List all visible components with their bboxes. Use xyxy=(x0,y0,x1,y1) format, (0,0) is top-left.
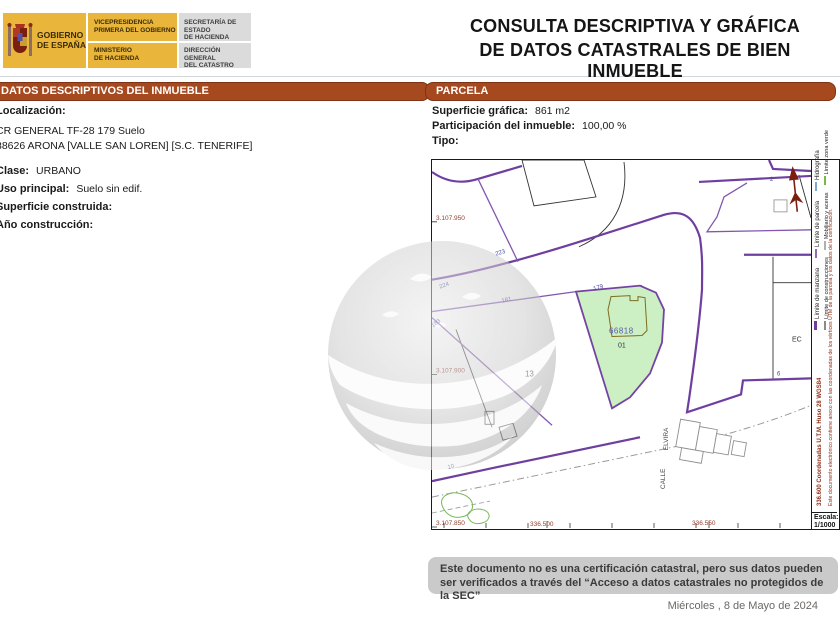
svg-text:10: 10 xyxy=(447,464,456,471)
gobierno-logo-box: GOBIERNO DE ESPAÑA xyxy=(3,13,86,68)
building-cluster xyxy=(674,419,749,470)
svg-text:3.107.850: 3.107.850 xyxy=(436,520,465,527)
uso-principal-row: Uso principal:Suelo sin edif. xyxy=(0,183,142,195)
small-building-outline xyxy=(774,200,787,212)
hidrografia-swatch-icon xyxy=(815,182,817,191)
title-line1: CONSULTA DESCRIPTIVA Y GRÁFICA xyxy=(440,16,830,37)
svg-text:3.107.900: 3.107.900 xyxy=(436,367,465,374)
ministerio-box: VICEPRESIDENCIA PRIMERA DEL GOBIERNO MIN… xyxy=(88,13,177,68)
street-name-calle-elvira: ELVIRA CALLE xyxy=(660,427,670,489)
spain-coat-of-arms-icon xyxy=(7,20,33,62)
subject-parcel-sub: 01 xyxy=(618,342,626,349)
svg-text:CALLE: CALLE xyxy=(660,468,667,489)
north-arrow-icon xyxy=(786,165,805,212)
secretaria-line1: SECRETARÍA DE ESTADO xyxy=(184,19,251,34)
svg-text:224: 224 xyxy=(439,281,451,290)
sidewalk-dashed-line-2 xyxy=(432,501,490,513)
svg-text:336.500: 336.500 xyxy=(530,521,554,528)
parcela-section-bar: PARCELA xyxy=(425,82,836,101)
disclaimer-box: Este documento no es una certificación c… xyxy=(428,557,838,594)
ec-label: EC xyxy=(792,337,802,344)
superficie-grafica-row: Superficie gráfica:861 m2 xyxy=(432,105,570,117)
svg-text:3.107.950: 3.107.950 xyxy=(436,215,465,222)
svg-text:6: 6 xyxy=(777,371,781,377)
localizacion-label: Localización: xyxy=(0,105,66,117)
vicepresidencia-line1: VICEPRESIDENCIA xyxy=(94,19,176,27)
scale-label: Escala: xyxy=(814,514,837,522)
cadastral-document-page: GOBIERNO DE ESPAÑA VICEPRESIDENCIA PRIME… xyxy=(0,0,840,630)
title-line2: DE DATOS CATASTRALES DE BIEN INMUEBLE xyxy=(440,40,830,82)
map-legend-column: Límite de manzanaLímite de parcelaHidrog… xyxy=(811,160,837,529)
vicepresidencia-line2: PRIMERA DEL GOBIERNO xyxy=(94,27,176,35)
zona-verde-contours xyxy=(442,493,490,524)
svg-text:223: 223 xyxy=(495,249,507,258)
cadastral-map-frame: 3.107.950 3.107.900 3.107.850 336.500 33… xyxy=(431,159,840,530)
ministerio-line1: MINISTERIO xyxy=(94,47,139,55)
electronic-document-note: Este documento electrónico contiene anex… xyxy=(826,174,837,506)
direccion-catastro-line1: DIRECCIÓN GENERAL xyxy=(184,47,251,62)
parcela-section-title: PARCELA xyxy=(436,85,488,97)
address-line2: 38626 ARONA [VALLE SAN LOREN] [S.C. TENE… xyxy=(0,140,252,152)
scale-value: 1/1000 xyxy=(814,522,837,530)
secretaria-box: SECRETARÍA DE ESTADO DE HACIENDA DIRECCI… xyxy=(179,13,251,68)
manzana-swatch-icon xyxy=(814,321,817,330)
left-section-bar: DATOS DESCRIPTIVOS DEL INMUEBLE xyxy=(0,82,430,101)
left-section-title: DATOS DESCRIPTIVOS DEL INMUEBLE xyxy=(1,85,209,97)
subject-parcel-number: 66818 xyxy=(609,327,634,336)
participacion-row: Participación del inmueble:100,00 % xyxy=(432,120,626,132)
document-date: Miércoles , 8 de Mayo de 2024 xyxy=(420,600,830,612)
cadastral-map: 3.107.950 3.107.900 3.107.850 336.500 33… xyxy=(432,160,811,529)
tipo-row: Tipo: xyxy=(432,135,466,147)
svg-text:181: 181 xyxy=(501,296,513,304)
ministerio-line2: DE HACIENDA xyxy=(94,55,139,63)
utm-coordinates-note: 336.600 Coordenadas U.T.M. Huso 28 WGS84 xyxy=(815,346,826,506)
parcela-swatch-icon xyxy=(815,249,817,258)
disclaimer-text: Este documento no es una certificación c… xyxy=(440,563,823,602)
clase-row: Clase:URBANO xyxy=(0,165,81,177)
svg-text:336.550: 336.550 xyxy=(692,520,716,527)
ano-construccion-row: Año construcción: xyxy=(0,219,100,231)
superficie-construida-row: Superficie construida: xyxy=(0,201,119,213)
direccion-catastro-line2: DEL CATASTRO xyxy=(184,62,251,70)
localizacion-row: Localización: xyxy=(0,105,66,117)
coordinate-labels: 3.107.950 3.107.900 3.107.850 336.500 33… xyxy=(436,215,716,528)
gobierno-text: GOBIERNO DE ESPAÑA xyxy=(37,31,86,50)
address-line1: CR GENERAL TF-28 179 Suelo xyxy=(0,125,145,137)
scale-box: Escala: 1/1000 xyxy=(812,512,837,529)
svg-text:ELVIRA: ELVIRA xyxy=(663,427,670,450)
logo-separator xyxy=(88,41,177,43)
parcel-13-label: 13 xyxy=(525,369,534,378)
